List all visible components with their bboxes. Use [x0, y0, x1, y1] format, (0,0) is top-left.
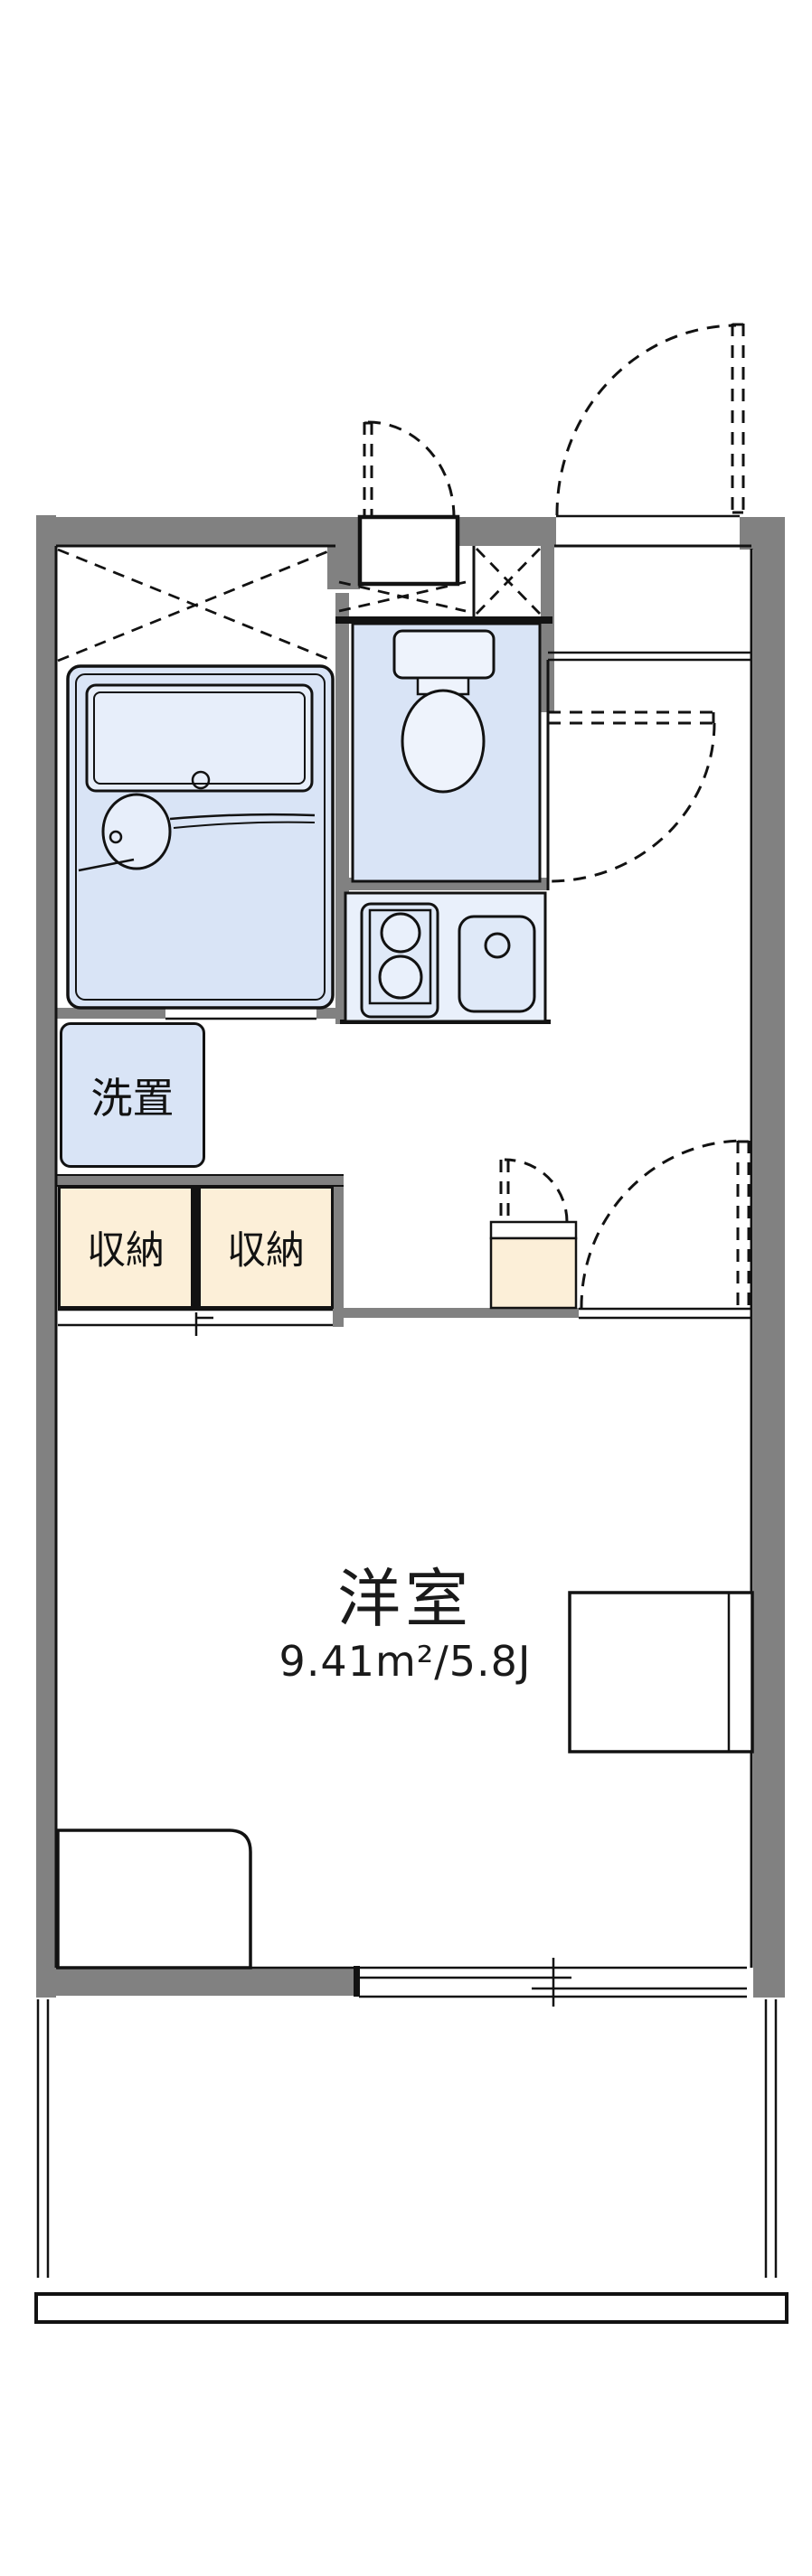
bathroom: [68, 666, 333, 1008]
room-counter: [58, 1830, 250, 1968]
fridge-door-arc: [505, 1160, 567, 1222]
fridge-space-top: [491, 1222, 576, 1238]
wall-bath-bottom-left: [56, 1008, 165, 1019]
entrance-door-arc: [557, 325, 736, 515]
wall-right-outer: [753, 549, 785, 1998]
stove-burner-2: [380, 956, 421, 998]
room-door-arc: [581, 1141, 743, 1308]
ps-x-2: [477, 549, 540, 614]
meter-door-arc: [368, 422, 454, 517]
wall-room-top-band: [344, 1308, 579, 1318]
kitchen-sink: [459, 917, 534, 1011]
laundry-label: 洗置: [91, 1066, 175, 1125]
wall-above-storage: [56, 1175, 344, 1186]
storage-left-label: 収納: [87, 1219, 165, 1275]
toilet-room: [353, 624, 540, 881]
wall-end-cap: [354, 1966, 360, 1997]
wall-left-outer: [36, 515, 56, 1998]
laundry-space-box: 洗置: [60, 1022, 205, 1168]
kitchen-door-arc: [550, 723, 714, 881]
stove-burner-1: [382, 914, 420, 952]
wall-top-left: [36, 517, 360, 546]
kitchen: [345, 893, 545, 1021]
wall-bottom: [36, 1968, 355, 1996]
storage-right-label: 収納: [227, 1219, 305, 1275]
toilet-bowl: [402, 691, 484, 792]
balcony-rail-bottom: [36, 2294, 787, 2322]
toilet-tank: [394, 631, 494, 678]
storage-left-box: 収納: [58, 1186, 194, 1309]
wall-storage-right-column: [333, 1175, 344, 1327]
fridge-space: [491, 1238, 576, 1308]
main-room-name: 洋室: [337, 1566, 473, 1633]
floor-plan-canvas: 洗置 収納 収納 洋室 9.41m²/5.8J: [0, 0, 812, 2576]
balcony-window: [36, 1958, 787, 2322]
meter-box: [360, 517, 458, 584]
room-closet: [570, 1593, 752, 1752]
hall-fixtures: [491, 1222, 576, 1308]
storage-right-box: 収納: [198, 1186, 334, 1309]
bathtub: [87, 685, 312, 791]
wall-top-middle: [458, 517, 556, 546]
wall-bath-bottom-right: [316, 1008, 335, 1019]
main-room-size: 9.41m²/5.8J: [279, 1637, 532, 1686]
main-room-label: 洋室 9.41m²/5.8J: [262, 1566, 548, 1686]
